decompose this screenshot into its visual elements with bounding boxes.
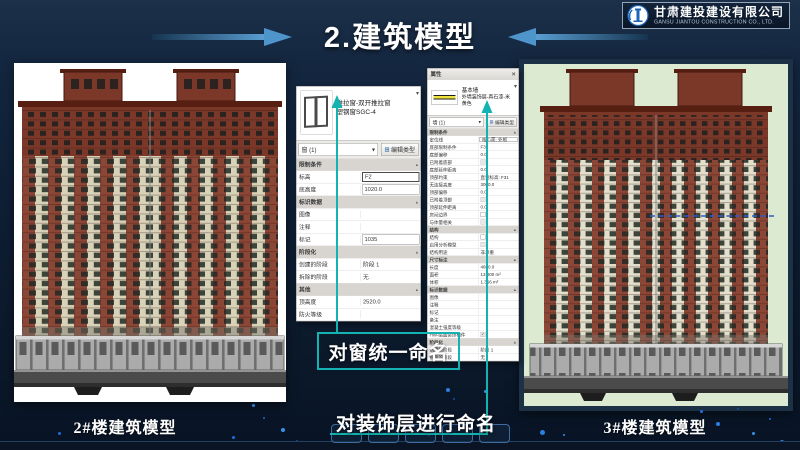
property-label: 尺寸标注 xyxy=(428,256,471,263)
property-label: 结构 xyxy=(428,234,479,241)
edit-type-button[interactable]: ⊞ 编辑类型 xyxy=(487,117,516,127)
window-type-thumbnail xyxy=(301,91,333,135)
property-row[interactable]: 结构用途 非承重 xyxy=(428,249,519,257)
property-label: 创建的阶段 xyxy=(297,261,361,269)
window-properties-table: 限制条件 标高 F2 底高度 1020.0 xyxy=(297,159,421,322)
wall-element-select[interactable]: 墙 (1) ▾ xyxy=(430,117,485,127)
property-value[interactable]: 0.0 xyxy=(478,152,518,157)
property-value[interactable]: 非承重 xyxy=(478,249,518,256)
particle-dot xyxy=(232,436,235,439)
edit-type-button[interactable]: ⊞ 编辑类型 xyxy=(381,143,419,156)
property-value[interactable]: 4600.0 xyxy=(478,265,518,270)
property-label: 顶部约束 xyxy=(428,174,479,181)
property-row[interactable]: 顶高度 2520.0 xyxy=(297,296,421,309)
property-label: 限制条件 xyxy=(297,161,357,169)
particle-dot xyxy=(281,428,285,432)
property-value[interactable] xyxy=(478,160,518,165)
property-row[interactable]: 创建的阶段 阶段 1 xyxy=(297,259,421,272)
particle-dot xyxy=(263,417,265,419)
property-label: 限制条件 xyxy=(428,129,471,136)
property-value[interactable] xyxy=(478,197,518,202)
property-value[interactable]: 1.366 m³ xyxy=(478,280,518,285)
property-value[interactable]: 阶段 1 xyxy=(478,346,518,353)
window-naming-callout: 对窗统一命名 xyxy=(317,332,460,370)
property-label: 房间边界 xyxy=(428,211,479,218)
property-value[interactable]: 无 xyxy=(478,354,518,361)
company-logo-icon xyxy=(627,5,649,27)
property-row[interactable]: 标识数据 xyxy=(297,196,421,209)
property-row[interactable]: 无连接高度 3000.0 xyxy=(428,181,519,189)
property-label: 体积 xyxy=(428,279,479,286)
property-row[interactable]: 定位线 核心面: 外部 xyxy=(428,136,519,144)
property-label: 图像 xyxy=(297,211,361,219)
property-row[interactable]: 与体量相关 xyxy=(428,219,519,227)
property-value[interactable] xyxy=(478,242,518,247)
property-row[interactable]: 拆除的阶段 无 xyxy=(297,271,421,284)
property-row[interactable]: 底部延伸距离 0.0 xyxy=(428,166,519,174)
property-row[interactable]: 房间边界 xyxy=(428,211,519,219)
wall-type-selector[interactable]: 基本墙 外墙装饰层-真石漆-米黄色 ▾ xyxy=(428,80,519,116)
property-row[interactable]: 备注 xyxy=(428,316,519,324)
property-row[interactable]: 顶部延伸距离 0.0 xyxy=(428,204,519,212)
close-icon[interactable]: × xyxy=(512,70,516,78)
property-row[interactable]: 其他 xyxy=(297,284,421,297)
property-label: 顶部延伸距离 xyxy=(428,204,479,211)
property-label: 其他 xyxy=(297,286,357,294)
property-row[interactable]: 防火等级 xyxy=(297,309,421,322)
window-type-selector[interactable]: 推拉窗-双开推拉窗 塑钢窗SGC-4 ▾ xyxy=(297,87,421,141)
window-element-select[interactable]: 窗 (1) ▾ xyxy=(299,143,378,156)
property-row[interactable]: 标记 xyxy=(428,309,519,317)
property-row[interactable]: 结构 xyxy=(428,226,519,234)
wall-type-thumbnail xyxy=(432,90,458,105)
edit-type-icon: ⊞ xyxy=(384,146,389,153)
property-label: 标识数据 xyxy=(428,286,471,293)
property-value[interactable]: 3000.0 xyxy=(478,182,518,187)
property-row[interactable]: 注释 xyxy=(428,301,519,309)
property-row[interactable]: 长度 4600.0 xyxy=(428,264,519,272)
property-value[interactable]: 无 xyxy=(361,273,421,281)
property-value[interactable]: 13.800 m² xyxy=(478,272,518,277)
property-row[interactable]: 限制条件 xyxy=(428,129,519,137)
particle-dot xyxy=(752,432,755,435)
building-2-caption: 2#楼建筑模型 xyxy=(40,414,210,438)
property-row[interactable]: 限制条件 xyxy=(297,159,421,172)
property-value[interactable]: 0.0 xyxy=(478,190,518,195)
property-label: 已附着顶部 xyxy=(428,196,479,203)
property-value[interactable] xyxy=(478,235,518,240)
property-label: 与体量相关 xyxy=(428,219,479,226)
property-label: 标识数据 xyxy=(297,198,357,206)
property-row[interactable]: 底高度 1020.0 xyxy=(297,184,421,197)
property-label: 面积 xyxy=(428,271,479,278)
property-row[interactable]: 底部偏移 0.0 xyxy=(428,151,519,159)
property-row[interactable]: 已附着顶部 xyxy=(428,196,519,204)
property-row[interactable]: 注释 xyxy=(297,221,421,234)
property-value[interactable]: 1035 xyxy=(362,235,420,245)
property-value[interactable]: F2 xyxy=(362,172,420,182)
property-row[interactable]: 底部限制条件 F30 xyxy=(428,144,519,152)
property-value[interactable]: 0.0 xyxy=(478,205,518,210)
chevron-down-icon[interactable]: ▾ xyxy=(514,83,517,90)
property-row[interactable]: 图像 xyxy=(297,209,421,222)
wall-properties-table: 限制条件 定位线 核心面: 外部 底部限制条件 F30 xyxy=(428,129,519,362)
property-row[interactable]: 体积 1.366 m³ xyxy=(428,279,519,287)
finish-naming-callout: 对装饰层进行命名 xyxy=(336,409,496,436)
edit-type-icon: ⊞ xyxy=(490,119,494,125)
property-label: 底高度 xyxy=(297,186,361,194)
property-label: 无连接高度 xyxy=(428,181,479,188)
particle-dot xyxy=(700,410,703,413)
title-arrow-left-icon xyxy=(152,28,292,46)
property-row[interactable]: 标高 F2 xyxy=(297,171,421,184)
particle-dot xyxy=(769,418,771,420)
property-row[interactable]: 结构 xyxy=(428,234,519,242)
property-value[interactable]: F30 xyxy=(478,145,518,150)
property-label: 标记 xyxy=(297,236,361,244)
property-row[interactable]: 标记 1035 xyxy=(297,234,421,247)
company-name-cn: 甘肃建投建设有限公司 xyxy=(654,6,784,19)
property-label: 标高 xyxy=(297,173,361,181)
property-row[interactable]: 标识数据 xyxy=(428,286,519,294)
properties-panel-title: 属性 xyxy=(431,70,442,78)
property-label: 备注 xyxy=(428,316,479,323)
property-row[interactable]: 面积 13.800 m² xyxy=(428,271,519,279)
property-row[interactable]: 顶部偏移 0.0 xyxy=(428,189,519,197)
property-value[interactable] xyxy=(478,332,518,337)
property-row[interactable]: 混凝土强度等级 xyxy=(428,324,519,332)
property-label: 防火等级 xyxy=(297,311,361,319)
property-label: 顶高度 xyxy=(297,298,361,306)
property-value[interactable] xyxy=(478,212,518,217)
property-value[interactable]: 核心面: 外部 xyxy=(479,137,517,142)
wall-properties-panel: 属性 × 基本墙 外墙装饰层-真石漆-米黄色 ▾ 墙 (1) ▾ xyxy=(427,68,611,450)
property-label: 底部偏移 xyxy=(428,151,479,158)
property-value[interactable]: 2520.0 xyxy=(361,299,421,305)
property-row[interactable]: 阶段化 xyxy=(297,246,421,259)
property-label: 结构 xyxy=(428,226,471,233)
property-label: 注释 xyxy=(297,223,361,231)
property-value[interactable]: 1020.0 xyxy=(362,185,420,195)
property-label: 拆除的阶段 xyxy=(297,273,361,281)
property-label: 长度 xyxy=(428,264,479,271)
property-row[interactable]: 已附着底部 xyxy=(428,159,519,167)
wall-type-name-line2: 外墙装饰层-真石漆-米黄色 xyxy=(462,94,512,107)
window-type-name-line2: 塑钢窗SGC-4 xyxy=(337,108,391,117)
property-row[interactable]: 启用分析模型 xyxy=(428,241,519,249)
company-name-en: GANSU JIANTOU CONSTRUCTION CO., LTD. xyxy=(654,19,784,25)
property-row[interactable]: 尺寸标注 xyxy=(428,256,519,264)
property-row[interactable]: 顶部约束 直到标高: F31 xyxy=(428,174,519,182)
property-label: 启用分析模型 xyxy=(428,241,479,248)
building-2-model-image xyxy=(14,63,286,402)
property-value[interactable]: 0.0 xyxy=(478,167,518,172)
slide: 2.建筑模型 甘肃建投建设有限公司 GANSU xyxy=(0,0,800,450)
property-label: 混凝土强度等级 xyxy=(428,324,479,331)
property-label: 标记 xyxy=(428,309,479,316)
property-label: 注释 xyxy=(428,301,479,308)
particle-dot xyxy=(252,404,255,407)
chevron-down-icon[interactable]: ▾ xyxy=(416,90,419,97)
property-value[interactable]: 阶段 1 xyxy=(361,261,421,269)
property-label: 顶部偏移 xyxy=(428,189,479,196)
property-label: 定位线 xyxy=(428,136,479,143)
window-type-name-line1: 推拉窗-双开推拉窗 xyxy=(337,99,391,108)
property-label: 结构用途 xyxy=(428,249,479,256)
chevron-down-icon: ▾ xyxy=(478,119,481,125)
property-label: 底部限制条件 xyxy=(428,144,479,151)
chevron-down-icon: ▾ xyxy=(372,146,375,153)
company-logo: 甘肃建投建设有限公司 GANSU JIANTOU CONSTRUCTION CO… xyxy=(622,2,800,56)
property-value[interactable] xyxy=(478,220,518,225)
property-label: 已附着底部 xyxy=(428,159,479,166)
particle-dot xyxy=(737,408,739,410)
property-label: 底部延伸距离 xyxy=(428,166,479,173)
property-label: 阶段化 xyxy=(297,248,357,256)
property-row[interactable]: 图像 xyxy=(428,294,519,302)
property-value[interactable]: 直到标高: F31 xyxy=(478,174,518,181)
property-label: 图像 xyxy=(428,294,479,301)
